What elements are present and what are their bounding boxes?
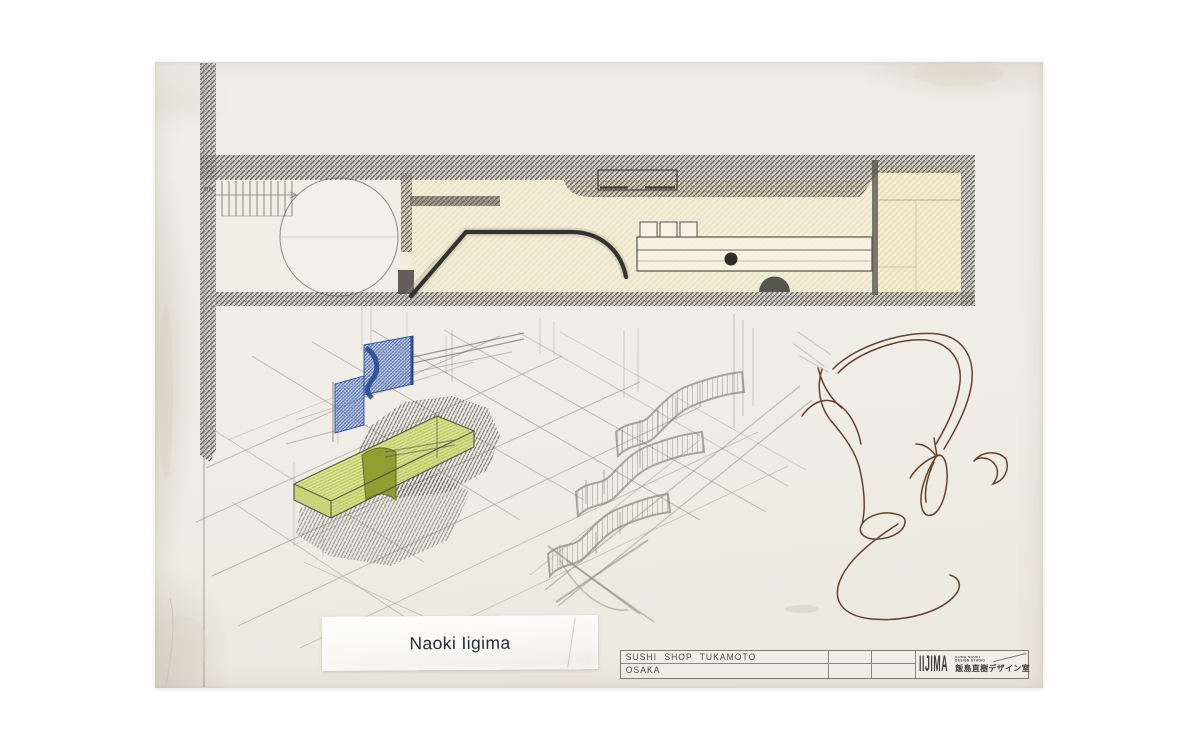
- perspective-sketch: [196, 300, 812, 662]
- pencil-sketch-drawing: [0, 0, 1200, 752]
- title-block-project-cell: SUSHI SHOP TUKAMOTO: [621, 651, 829, 664]
- stair-down-label: DN: [204, 187, 213, 193]
- project-city-text: OSAKA: [621, 664, 818, 676]
- title-block-city-cell: OSAKA: [621, 664, 829, 678]
- project-name-text: SUSHI SHOP TUKAMOTO: [621, 651, 818, 663]
- title-block-empty-cell-4: [872, 664, 916, 678]
- artist-label-strip: Naoki Iigima: [322, 615, 598, 671]
- wavy-partition: [530, 372, 812, 622]
- studio-logo-japanese: 飯島直樹デザイン室: [955, 664, 1030, 673]
- title-block: SUSHI SHOP TUKAMOTO IIJIMA IIJIMA NAOKI …: [620, 650, 1029, 679]
- title-block-empty-cell-3: [829, 664, 872, 678]
- title-block-empty-cell-1: [829, 651, 872, 664]
- studio-logo-text: IIJIMA: [919, 652, 948, 677]
- scanned-drawing-page: { "sheet": { "artist_label": "Naoki Iigi…: [0, 0, 1200, 752]
- floor-plan: [200, 63, 975, 687]
- pencil-smudge-lines: [794, 332, 830, 372]
- title-block-grid: SUSHI SHOP TUKAMOTO IIJIMA IIJIMA NAOKI …: [620, 650, 1029, 679]
- plan-counter-dot: [725, 253, 738, 266]
- ink-gesture-sketch: [794, 332, 1007, 620]
- title-block-empty-cell-2: [872, 651, 916, 664]
- studio-logo-subtext: IIJIMA NAOKI DESIGN STUDIO 飯島直樹デザイン室: [955, 656, 1030, 673]
- construction-lines: [196, 300, 806, 662]
- studio-logo-cell: IIJIMA IIJIMA NAOKI DESIGN STUDIO 飯島直樹デザ…: [916, 651, 1028, 678]
- studio-logo-sub2: DESIGN STUDIO: [955, 659, 996, 662]
- artist-name-text: Naoki Iigima: [409, 632, 510, 654]
